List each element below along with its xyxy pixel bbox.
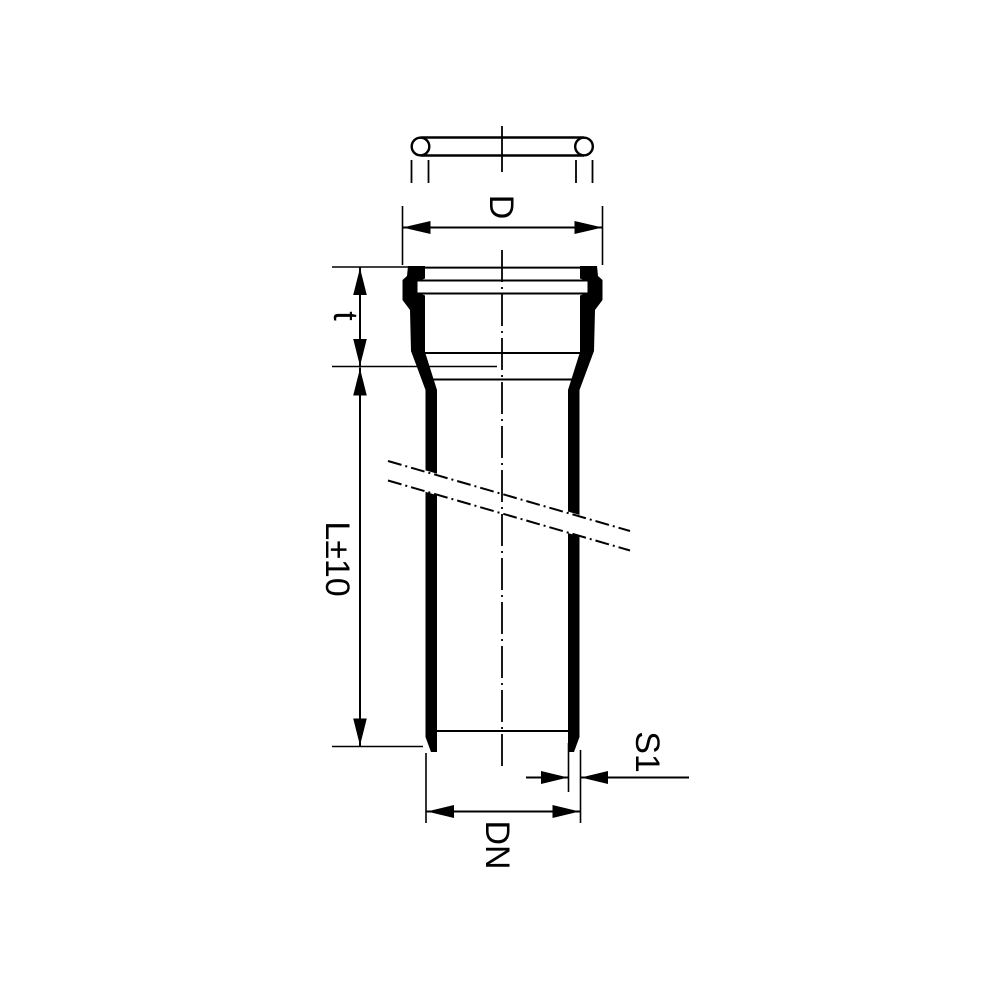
label-L: L±10: [318, 521, 356, 596]
break-gap: [388, 460, 630, 552]
pipe-left-wall: [403, 266, 438, 752]
pipe-right-wall: [568, 266, 603, 752]
dimension-S1: S1: [526, 731, 689, 823]
break-lines: [388, 460, 630, 552]
arrowhead-right: [575, 221, 603, 234]
arrowhead-left: [403, 221, 431, 234]
dimension-L: L±10: [318, 368, 423, 747]
label-S1: S1: [628, 731, 666, 773]
arrowhead-left: [427, 805, 454, 818]
arrowhead-left: [581, 771, 608, 784]
label-D: D: [482, 195, 520, 220]
dimension-DN: DN: [426, 753, 580, 870]
label-DN: DN: [478, 820, 516, 869]
arrowhead-down: [353, 719, 367, 746]
drawing-canvas: D: [0, 0, 1000, 1000]
arrowhead-right: [541, 771, 568, 784]
arrowhead-right: [553, 805, 580, 818]
arrowhead-down: [353, 339, 367, 366]
label-t: t: [326, 311, 364, 321]
ring-right-section-circle: [575, 138, 593, 156]
arrowhead-up: [353, 369, 367, 396]
sealing-ring: [412, 126, 593, 183]
pipe-technical-drawing: D: [0, 0, 1000, 1000]
ring-left-section-circle: [412, 138, 430, 156]
arrowhead-up: [353, 268, 367, 295]
